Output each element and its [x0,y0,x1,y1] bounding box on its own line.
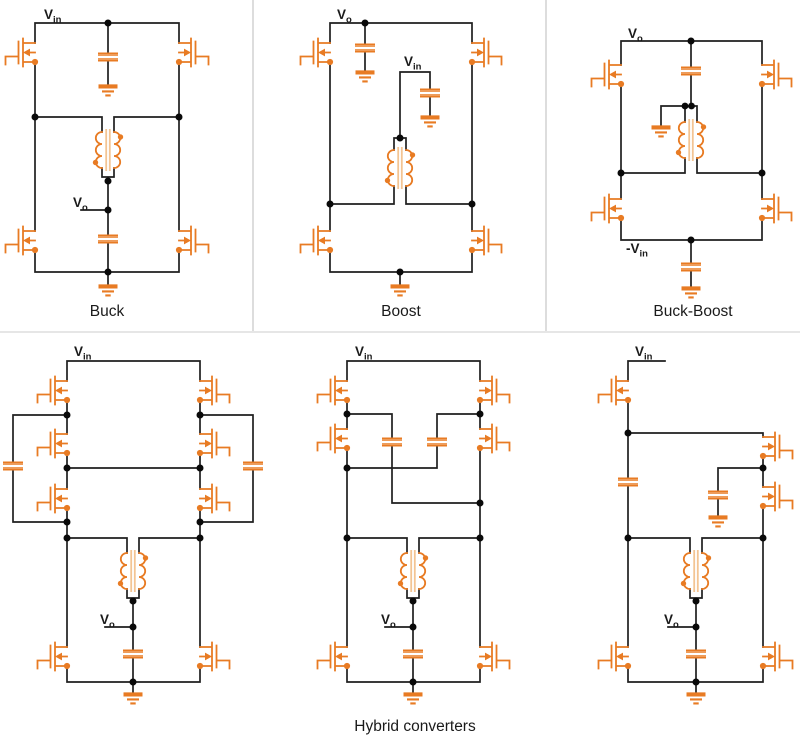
buck-boost-circuit: Vo -Vin Buck-Boost [592,26,792,320]
mosfet-icon [176,227,209,255]
mosfet-icon [592,61,625,89]
caption-buck-boost: Buck-Boost [653,303,733,320]
hybrid-circuit-3: Vin Vo [599,344,793,703]
mosfet-icon [760,433,793,461]
circuit-canvas: Vin Vo Buck Vo Vin Boost [0,0,800,737]
ground-icon [682,287,701,297]
caption-boost: Boost [381,303,421,320]
mosfet-icon [197,485,230,513]
mosfet-icon [197,430,230,458]
vin-label: Vin [74,344,92,363]
coupled-inductor-icon [676,119,706,161]
mosfet-icon [760,643,793,671]
mosfet-icon [592,195,625,223]
buck-circuit: Vin Vo Buck [6,7,209,320]
coupled-inductor-icon [385,147,415,189]
mosfet-icon [318,425,351,453]
mosfet-icon [301,227,334,255]
hybrid-circuit-1: Vin Vo [3,344,263,703]
mosfet-icon [599,377,632,405]
capacitor-icon [618,478,638,486]
mosfet-icon [759,195,792,223]
ground-icon [391,285,410,295]
coupled-inductor-icon [118,550,148,592]
mosfet-icon [197,643,230,671]
mosfet-icon [318,643,351,671]
coupled-inductor-icon [681,550,711,592]
mosfet-icon [318,377,351,405]
ground-icon [404,693,423,703]
capacitor-icon [708,491,728,499]
mosfet-icon [477,643,510,671]
mosfet-icon [6,227,39,255]
mosfet-icon [760,483,793,511]
ground-icon [421,116,440,126]
schematic-sheet: Vin Vo Buck Vo Vin Boost [0,0,800,737]
ground-icon [356,71,375,81]
vin-label: Vin [404,54,422,73]
capacitor-icon [427,438,447,446]
hybrid-circuit-2: Vin Vo [318,344,510,703]
capacitor-icon [243,462,263,470]
capacitor-icon [681,67,701,75]
capacitor-icon [3,462,23,470]
neg-vin-label: -Vin [626,241,648,260]
capacitor-icon [123,650,143,658]
mosfet-icon [759,61,792,89]
mosfet-icon [197,377,230,405]
wires [628,361,763,694]
vin-label: Vin [635,344,653,363]
mosfet-icon [477,425,510,453]
capacitor-icon [355,44,375,52]
mosfet-icon [599,643,632,671]
ground-icon [709,516,728,526]
capacitor-icon [98,53,118,61]
ground-icon [687,693,706,703]
mosfet-icon [38,377,71,405]
capacitor-icon [403,650,423,658]
caption-buck: Buck [90,303,125,320]
coupled-inductor-icon [398,550,428,592]
mosfet-icon [469,227,502,255]
mosfet-icon [469,39,502,67]
mosfet-icon [38,430,71,458]
capacitor-icon [98,235,118,243]
ground-icon [99,85,118,95]
wires [347,361,480,694]
ground-icon [652,126,671,136]
ground-icon [124,693,143,703]
mosfet-icon [301,39,334,67]
mosfet-icon [176,39,209,67]
ground-icon [99,285,118,295]
vin-label: Vin [355,344,373,363]
mosfet-icon [38,643,71,671]
boost-circuit: Vo Vin Boost [301,7,502,320]
mosfet-icon [477,377,510,405]
capacitor-icon [420,89,440,97]
mosfet-icon [38,485,71,513]
coupled-inductor-icon [93,129,123,171]
caption-hybrid: Hybrid converters [354,718,476,735]
capacitor-icon [681,263,701,271]
wires [13,361,253,694]
capacitor-icon [686,650,706,658]
mosfet-icon [6,39,39,67]
capacitor-icon [382,438,402,446]
